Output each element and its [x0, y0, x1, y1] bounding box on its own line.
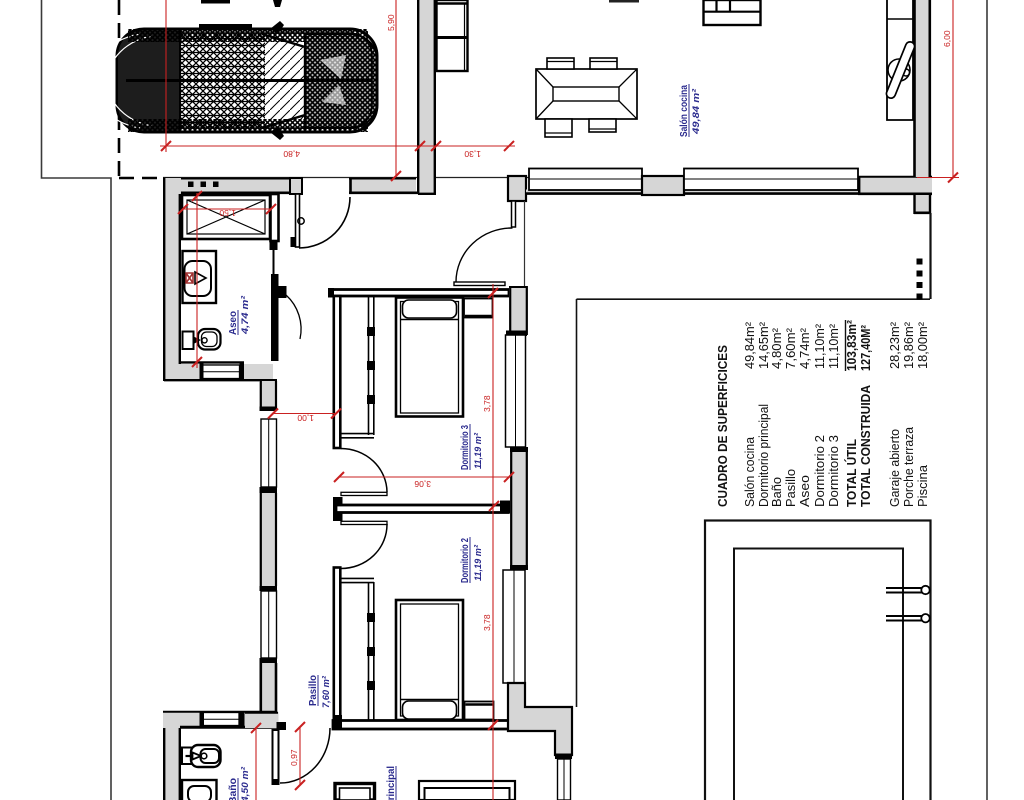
svg-text:4,80: 4,80: [283, 149, 300, 159]
svg-text:6,00: 6,00: [942, 30, 952, 47]
svg-text:7,60 m²: 7,60 m²: [321, 675, 332, 708]
svg-text:Dormitorio 3: Dormitorio 3: [826, 435, 841, 507]
svg-text:4,74m²: 4,74m²: [797, 327, 812, 369]
svg-text:Aseo: Aseo: [797, 475, 812, 507]
svg-text:28,23m²: 28,23m²: [887, 321, 902, 369]
svg-text:4,50 m²: 4,50 m²: [240, 766, 251, 800]
svg-text:TOTAL ÚTIL: TOTAL ÚTIL: [844, 439, 859, 507]
svg-text:Garaje abierto: Garaje abierto: [887, 429, 902, 507]
svg-text:1,50: 1,50: [219, 208, 236, 218]
svg-text:Baño: Baño: [228, 778, 239, 800]
svg-text:Pasillo: Pasillo: [783, 469, 798, 507]
svg-text:CUADRO DE SUPERFICICES: CUADRO DE SUPERFICICES: [715, 345, 730, 507]
svg-text:4,74 m²: 4,74 m²: [240, 295, 251, 335]
svg-text:Dormitorio 2: Dormitorio 2: [812, 435, 827, 507]
svg-text:19,86m²: 19,86m²: [901, 321, 916, 369]
svg-text:49,84 m²: 49,84 m²: [691, 88, 702, 135]
svg-text:4,80m²: 4,80m²: [769, 327, 784, 369]
svg-text:3,78: 3,78: [482, 614, 492, 631]
svg-text:Dormitorio 2: Dormitorio 2: [460, 538, 471, 583]
svg-text:Aseo: Aseo: [228, 311, 239, 335]
svg-text:0,97: 0,97: [289, 749, 299, 766]
svg-text:Dormitorio 3: Dormitorio 3: [460, 425, 471, 470]
svg-text:1,00: 1,00: [297, 413, 314, 423]
svg-text:Baño: Baño: [769, 477, 784, 507]
svg-text:Pasillo: Pasillo: [308, 675, 319, 706]
svg-text:Salón cocina: Salón cocina: [742, 436, 757, 507]
svg-text:Salón cocina: Salón cocina: [679, 85, 690, 137]
svg-text:49,84m²: 49,84m²: [742, 321, 757, 369]
svg-text:TOTAL CONSTRUIDA: TOTAL CONSTRUIDA: [858, 384, 873, 507]
svg-text:103,83m²: 103,83m²: [844, 319, 859, 371]
svg-text:Porche terraza: Porche terraza: [901, 426, 916, 507]
svg-text:5,90: 5,90: [386, 14, 396, 31]
svg-text:3,78: 3,78: [482, 395, 492, 412]
svg-text:18,00m²: 18,00m²: [915, 321, 930, 369]
svg-text:Piscina: Piscina: [915, 464, 930, 507]
svg-text:3,06: 3,06: [414, 479, 431, 489]
svg-text:7,60m²: 7,60m²: [783, 327, 798, 369]
svg-text:11,10m²: 11,10m²: [826, 323, 841, 369]
svg-text:11,10m²: 11,10m²: [812, 323, 827, 369]
svg-text:127,40M²: 127,40M²: [858, 324, 873, 371]
svg-text:11,19 m²: 11,19 m²: [473, 544, 484, 581]
svg-text:1,30: 1,30: [464, 149, 481, 159]
svg-text:Dormitorio principal: Dormitorio principal: [386, 766, 397, 800]
svg-text:11,19 m²: 11,19 m²: [473, 432, 484, 469]
